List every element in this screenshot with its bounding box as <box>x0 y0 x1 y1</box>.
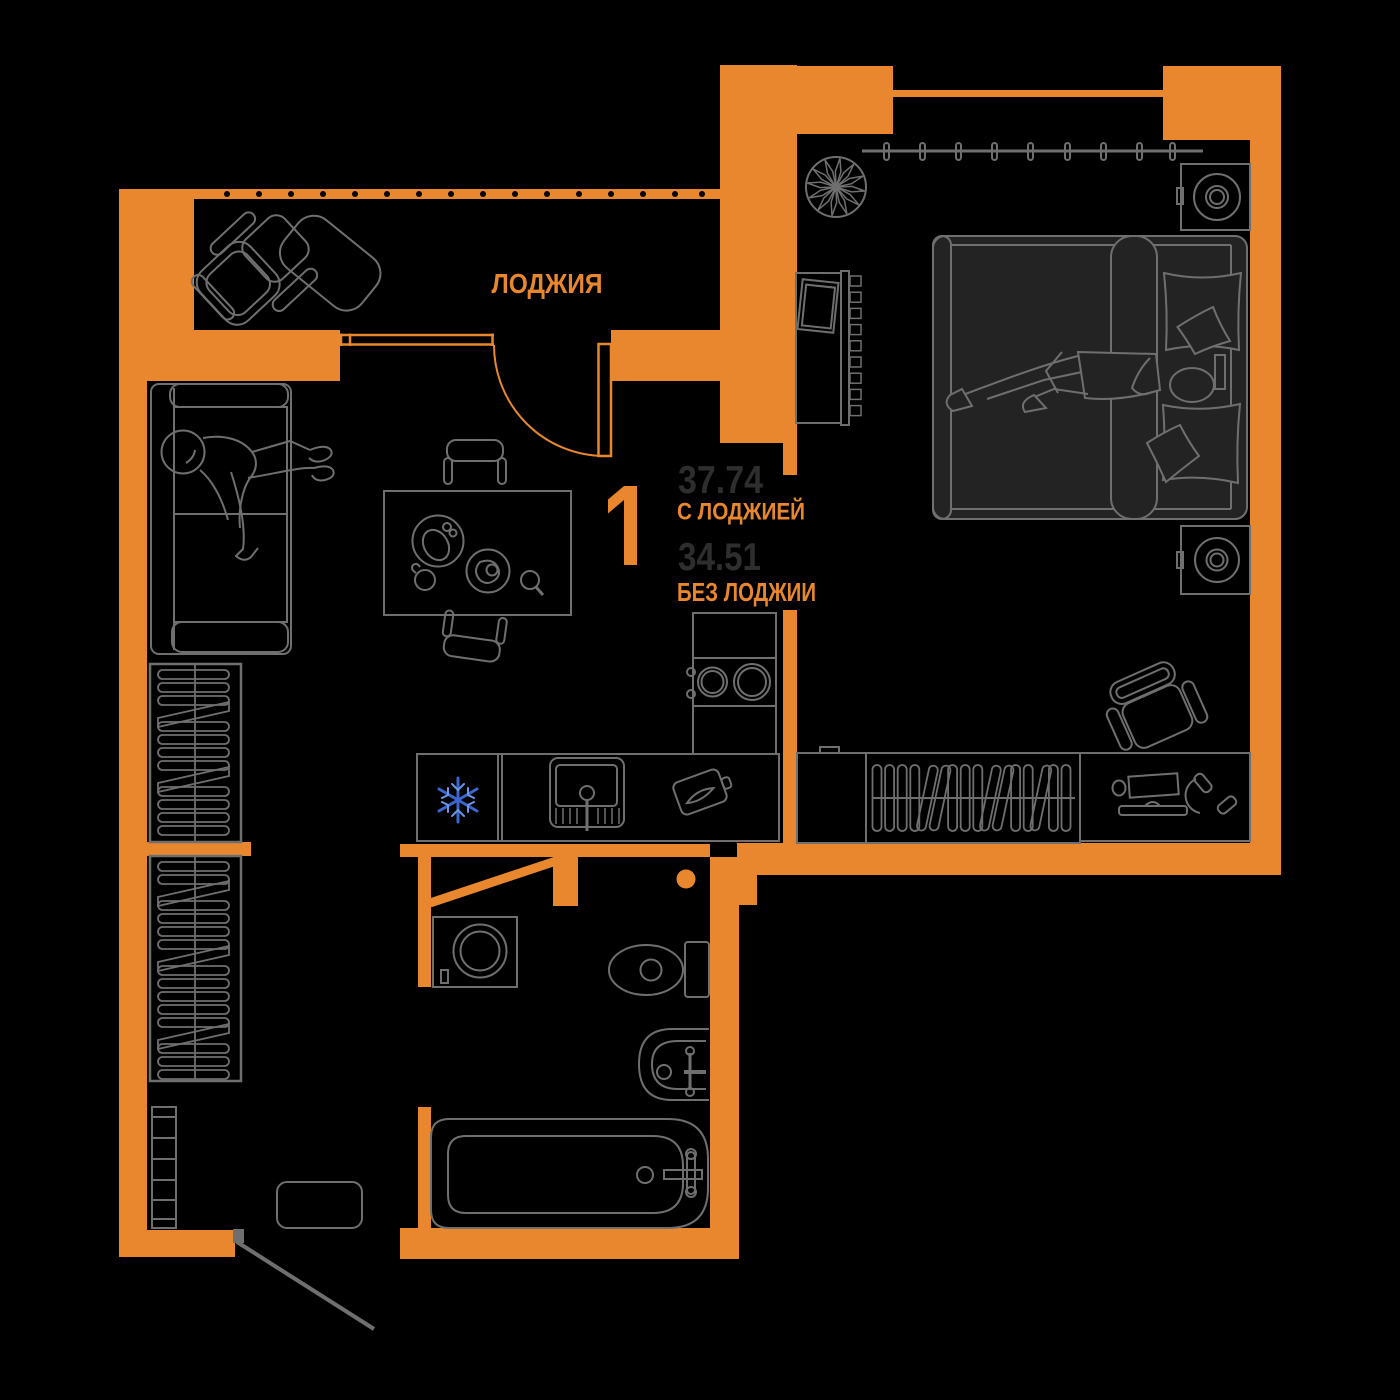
svg-text:БЕЗ ЛОДЖИИ: БЕЗ ЛОДЖИИ <box>677 577 816 607</box>
svg-text:34.51: 34.51 <box>678 536 761 579</box>
svg-text:37.74: 37.74 <box>678 459 764 502</box>
svg-text:С ЛОДЖИЕЙ: С ЛОДЖИЕЙ <box>677 498 805 526</box>
svg-text:ЛОДЖИЯ: ЛОДЖИЯ <box>492 268 603 299</box>
